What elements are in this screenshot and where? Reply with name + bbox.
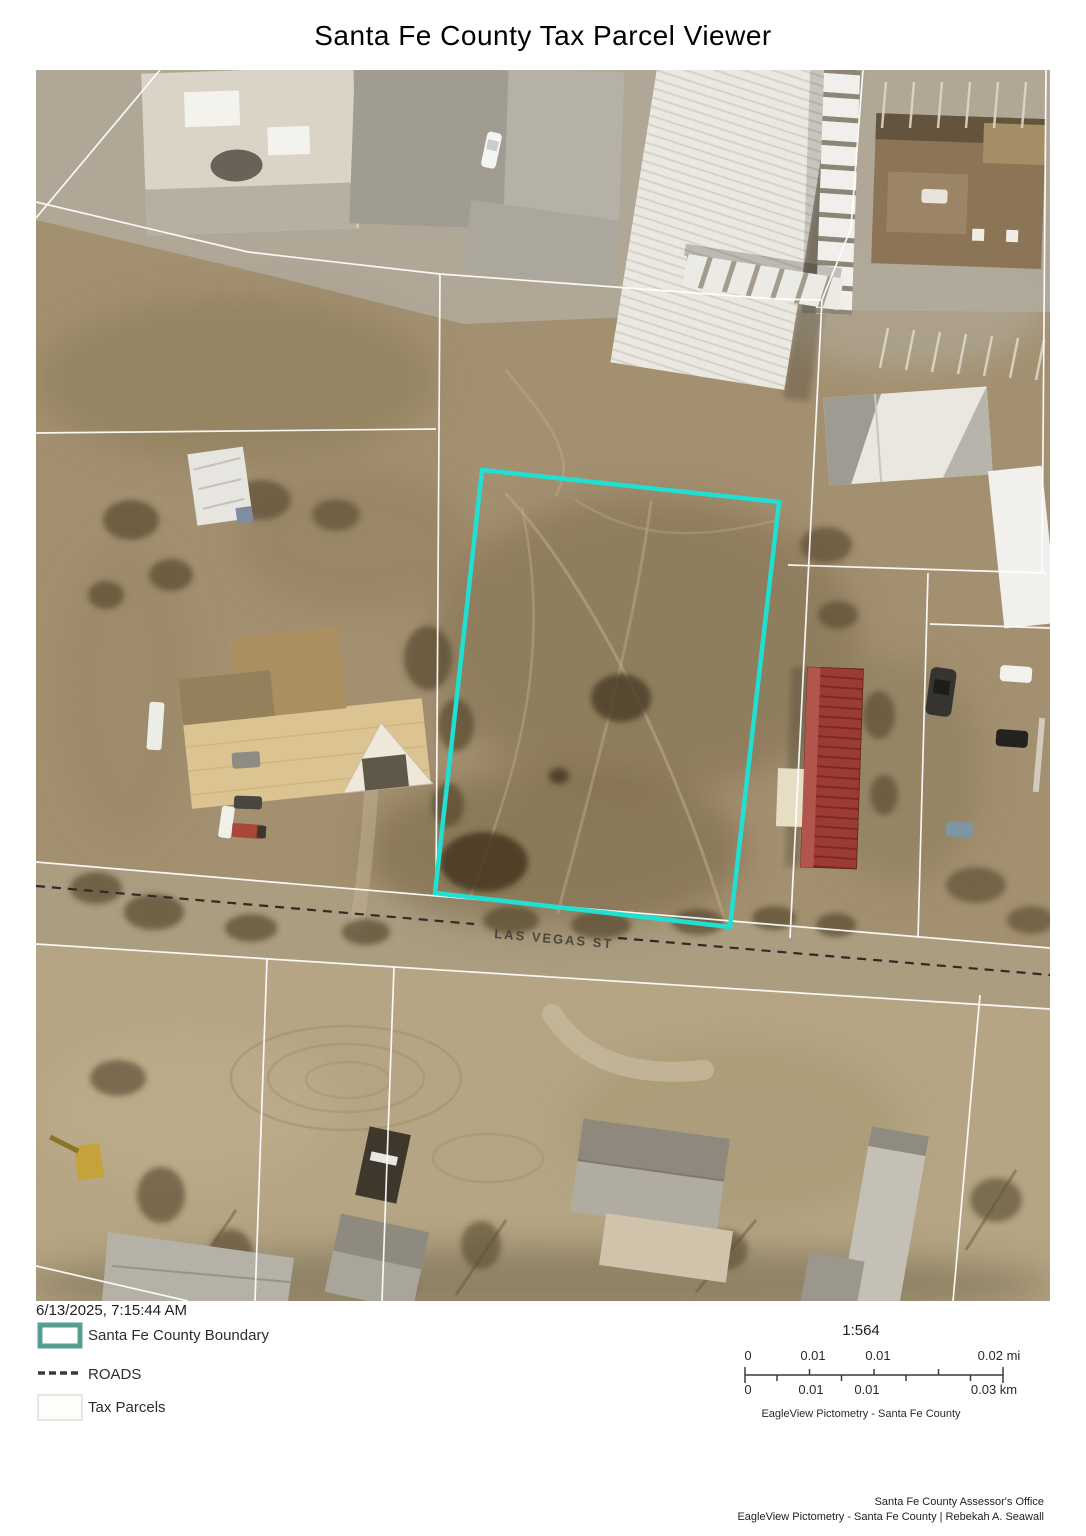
scale-km-3: 0.03 km — [971, 1382, 1017, 1397]
scale-mi-2: 0.01 — [865, 1348, 890, 1363]
legend-county-boundary-label: Santa Fe County Boundary — [88, 1327, 269, 1344]
scale-km-1: 0.01 — [798, 1382, 823, 1397]
building-top-left — [141, 70, 359, 236]
timestamp: 6/13/2025, 7:15:44 AM — [36, 1302, 187, 1319]
aerial-imagery: LAS VEGAS ST — [36, 70, 1050, 1301]
scale-mi-1: 0.01 — [800, 1348, 825, 1363]
attribution-line2: EagleView Pictometry - Santa Fe County |… — [737, 1510, 1044, 1525]
scale-bar: 0 0.01 0.01 0.02 mi 0 0.01 0.01 0.03 km — [741, 1344, 1041, 1398]
tax-parcels-swatch — [36, 1393, 84, 1422]
page-title: Santa Fe County Tax Parcel Viewer — [0, 20, 1086, 52]
map-canvas: LAS VEGAS ST — [36, 70, 1050, 1301]
attribution-line1: Santa Fe County Assessor's Office — [737, 1495, 1044, 1510]
county-boundary-swatch — [36, 1321, 84, 1350]
scale-mi-3: 0.02 mi — [978, 1348, 1021, 1363]
legend-tax-parcels-label: Tax Parcels — [88, 1399, 166, 1416]
tarp-shed — [187, 447, 253, 530]
scale-km-2: 0.01 — [854, 1382, 879, 1397]
scale-ratio: 1:564 — [711, 1322, 1011, 1339]
building-brown-complex — [871, 113, 1046, 269]
imagery-credit: EagleView Pictometry - Santa Fe County — [711, 1408, 1011, 1420]
building-white-house — [823, 386, 993, 485]
page: Santa Fe County Tax Parcel Viewer — [0, 0, 1086, 1536]
scale-km-0: 0 — [744, 1382, 751, 1397]
roads-dash-icon — [36, 1366, 84, 1380]
legend-roads-label: ROADS — [88, 1366, 141, 1383]
attribution-block: Santa Fe County Assessor's Office EagleV… — [737, 1495, 1044, 1525]
scale-mi-0: 0 — [744, 1348, 751, 1363]
